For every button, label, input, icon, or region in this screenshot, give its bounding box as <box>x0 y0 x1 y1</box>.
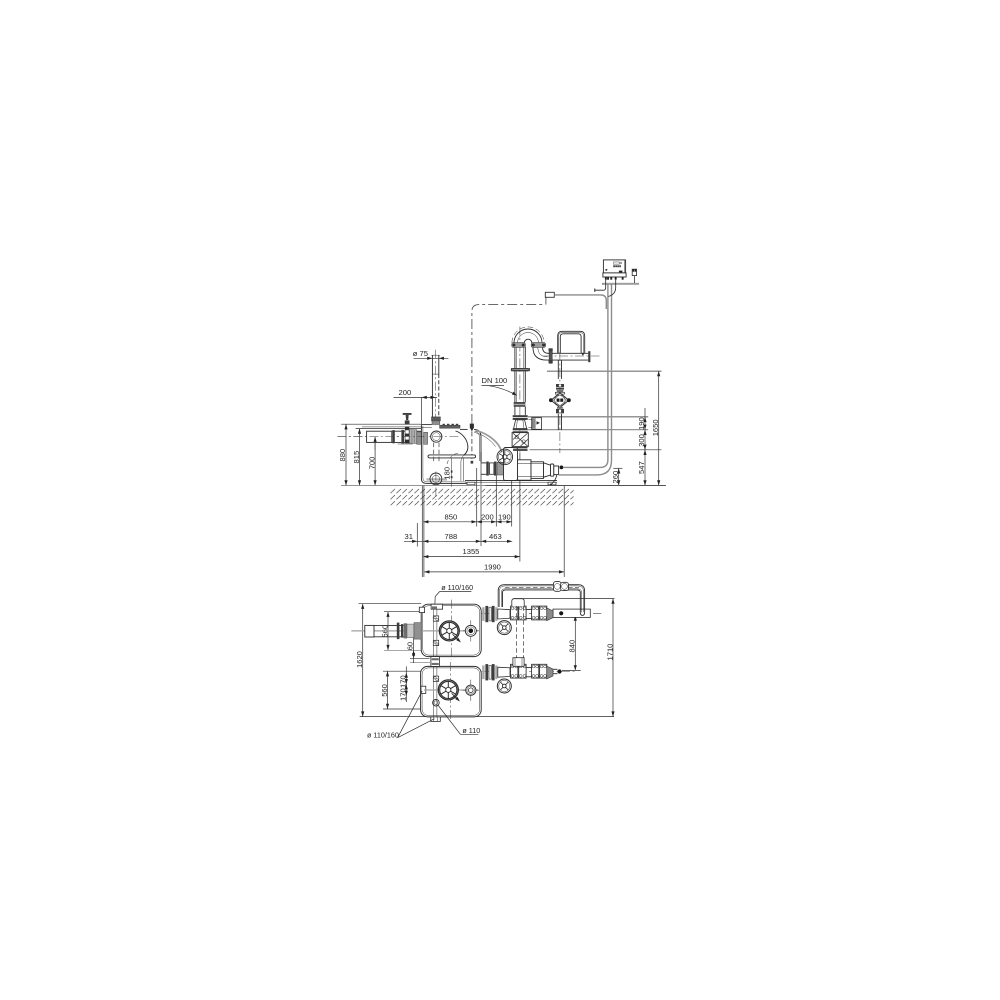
svg-text:200: 200 <box>399 388 412 397</box>
svg-text:300: 300 <box>637 434 646 447</box>
svg-text:260: 260 <box>611 471 620 484</box>
svg-text:1620: 1620 <box>355 651 364 668</box>
svg-text:547: 547 <box>637 461 646 474</box>
svg-text:815: 815 <box>352 451 361 464</box>
svg-text:DN 100: DN 100 <box>482 376 508 385</box>
svg-text:190: 190 <box>498 513 511 522</box>
svg-text:ø 110/160: ø 110/160 <box>367 731 399 740</box>
svg-text:560: 560 <box>380 684 389 697</box>
svg-text:788: 788 <box>445 532 458 541</box>
svg-text:190: 190 <box>637 417 646 430</box>
svg-text:1355: 1355 <box>463 547 480 556</box>
svg-text:60: 60 <box>406 642 415 650</box>
svg-text:200: 200 <box>481 513 494 522</box>
svg-text:ø 110: ø 110 <box>462 726 480 735</box>
svg-text:880: 880 <box>338 449 347 462</box>
svg-text:180: 180 <box>442 467 451 480</box>
svg-text:ø 75: ø 75 <box>413 349 428 358</box>
svg-text:840: 840 <box>568 640 577 653</box>
svg-text:31: 31 <box>405 532 413 541</box>
svg-text:1650: 1650 <box>651 419 660 436</box>
svg-text:463: 463 <box>489 532 502 541</box>
svg-text:700: 700 <box>368 457 377 470</box>
svg-text:1990: 1990 <box>484 563 501 572</box>
svg-text:850: 850 <box>445 513 458 522</box>
svg-text:1710: 1710 <box>605 644 614 661</box>
svg-text:170: 170 <box>399 675 408 688</box>
svg-text:170: 170 <box>399 688 408 701</box>
svg-text:ø 110/160: ø 110/160 <box>441 583 473 592</box>
